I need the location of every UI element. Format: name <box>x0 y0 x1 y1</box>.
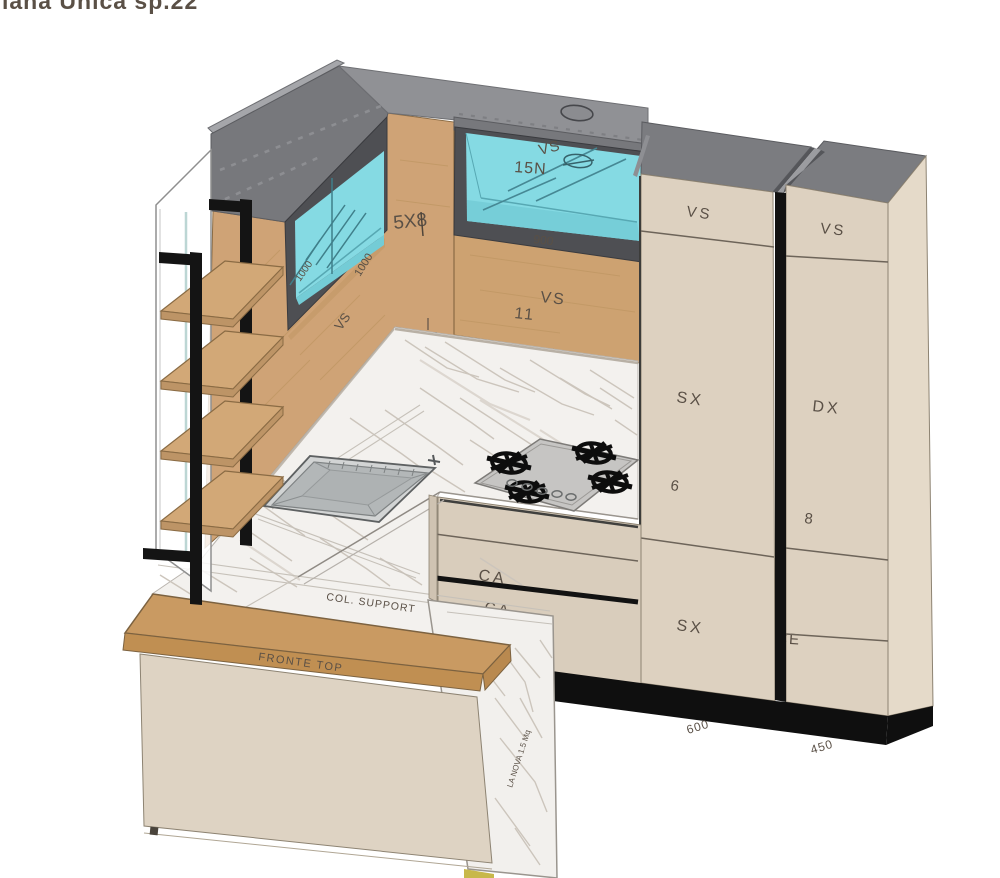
svg-text:DX: DX <box>812 398 842 418</box>
svg-text:15N: 15N <box>514 159 547 178</box>
svg-text:VS: VS <box>685 203 713 223</box>
svg-text:VS: VS <box>820 220 848 240</box>
svg-text:8: 8 <box>804 510 814 528</box>
svg-text:lana Unica sp.22: lana Unica sp.22 <box>2 0 198 14</box>
svg-text:900: 900 <box>533 232 555 248</box>
svg-text:VS: VS <box>540 289 567 309</box>
svg-text:11: 11 <box>514 305 536 324</box>
